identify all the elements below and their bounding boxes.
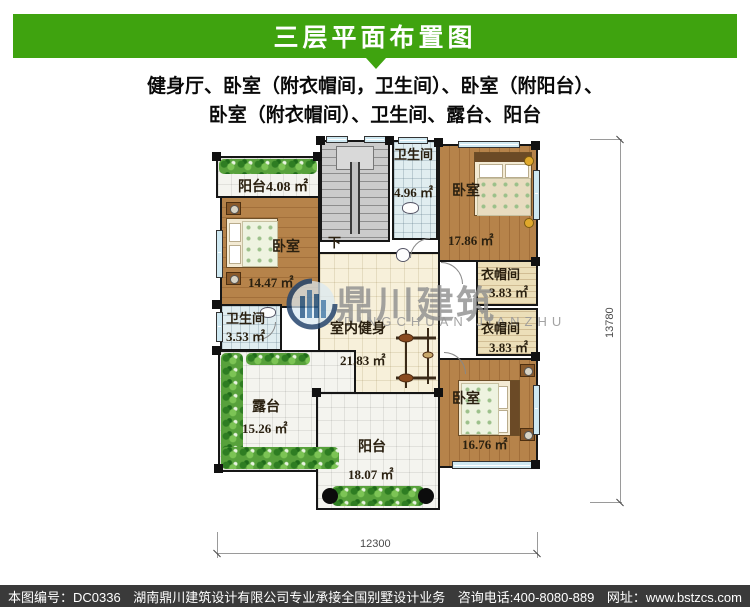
phone-number: 咨询电话:400-8080-889 <box>458 587 595 606</box>
title-bar: 三层平面布置图 <box>13 14 737 58</box>
plants-top-balcony <box>219 159 317 174</box>
page: { "header": { "title": "三层平面布置图", "descr… <box>0 0 750 607</box>
room-area-terrace: 15.26 ㎡ <box>242 418 288 437</box>
column <box>418 488 434 504</box>
room-label-bath-left: 卫生间 <box>226 308 265 327</box>
toilet <box>402 202 419 214</box>
room-area-bath-left: 3.53 ㎡ <box>226 326 265 345</box>
website-url: 网址：www.bstzcs.com <box>607 587 742 606</box>
description-line-2: 卧室（附衣帽间）、卫生间、露台、阳台 <box>0 101 750 130</box>
room-area-gym: 21.83 ㎡ <box>340 350 386 369</box>
dimension-bottom-value: 12300 <box>360 538 391 550</box>
room-area-closet-upper: 3.83 ㎡ <box>489 282 528 301</box>
window <box>216 312 223 342</box>
description-line-1: 健身厅、卧室（附衣帽间，卫生间）、卧室（附阳台）、 <box>0 72 750 101</box>
plants-bottom-balcony <box>332 486 424 506</box>
window <box>216 230 223 278</box>
room-label-bedroom-top-right: 卧室 <box>452 180 480 200</box>
window <box>398 137 428 144</box>
page-title: 三层平面布置图 <box>273 18 476 54</box>
wall-pillar <box>531 352 540 361</box>
bed-left <box>226 218 278 268</box>
sink <box>396 248 410 262</box>
wall-pillar <box>312 388 321 397</box>
room-label-closet-upper: 衣帽间 <box>481 264 520 283</box>
wall-pillar <box>212 346 221 355</box>
window <box>452 461 532 469</box>
window <box>364 136 386 143</box>
dimension-extension <box>590 502 622 503</box>
stair-rail <box>350 162 360 234</box>
drawing-number: 本图编号：DC0336 <box>8 587 121 606</box>
window <box>533 170 540 220</box>
wall-pillar <box>316 136 325 145</box>
room-label-closet-lower: 衣帽间 <box>481 318 520 337</box>
plants-terrace-top <box>246 353 310 365</box>
dimension-line-bottom <box>217 553 538 554</box>
wall-pillar <box>212 300 221 309</box>
room-label-terrace: 露台 <box>252 396 280 416</box>
lamp <box>524 156 534 166</box>
wall-pillar <box>531 460 540 469</box>
room-area-bath-top: 4.96 ㎡ <box>394 182 433 201</box>
room-label-bedroom-left: 卧室 <box>272 236 300 256</box>
room-area-bedroom-bottom-right: 16.76 ㎡ <box>462 434 508 453</box>
stairs-down-label: 下 <box>328 232 341 251</box>
room-label-balcony-bottom: 阳台 <box>358 436 386 456</box>
wall-pillar <box>214 464 223 473</box>
wall-pillar <box>434 388 443 397</box>
column <box>322 488 338 504</box>
room-area-closet-lower: 3.83 ㎡ <box>489 337 528 356</box>
room-area-balcony-bottom: 18.07 ㎡ <box>348 464 394 483</box>
room-area-bedroom-left: 14.47 ㎡ <box>248 272 294 291</box>
plan-description: 健身厅、卧室（附衣帽间，卫生间）、卧室（附阳台）、 卧室（附衣帽间）、卫生间、露… <box>0 72 750 130</box>
room-label-gym: 室内健身 <box>330 318 386 338</box>
wall-pillar <box>212 152 221 161</box>
nightstand <box>226 202 241 215</box>
room-label-bedroom-bottom-right: 卧室 <box>452 388 480 408</box>
footer-bar: 本图编号：DC0336 湖南鼎川建筑设计有限公司专业承接全国别墅设计业务 咨询电… <box>0 585 750 607</box>
staircase <box>320 140 390 242</box>
dimension-right-value: 13780 <box>604 307 616 338</box>
dimension-extension <box>590 139 622 140</box>
window <box>533 385 540 435</box>
company-name: 湖南鼎川建筑设计有限公司专业承接全国别墅设计业务 <box>133 587 445 606</box>
wall-pillar <box>434 138 443 147</box>
room-label-balcony-top: 阳台4.08 ㎡ <box>238 176 308 196</box>
room-area-bedroom-top-right: 17.86 ㎡ <box>448 230 494 249</box>
door-arc <box>410 238 430 258</box>
nightstand <box>520 364 535 377</box>
window <box>326 136 348 143</box>
dimension-line-right <box>620 139 621 503</box>
door-arc <box>444 352 466 374</box>
wall-pillar <box>313 152 322 161</box>
plants-terrace-bottom <box>221 447 339 469</box>
title-pointer-icon <box>366 58 386 69</box>
room-label-bath-top: 卫生间 <box>394 144 433 163</box>
nightstand <box>226 272 241 285</box>
floor-plan: 阳台4.08 ㎡ 卧室 14.47 ㎡ 下 卫生间 4.96 ㎡ 卧室 17.8… <box>0 130 750 580</box>
wall-pillar <box>385 136 394 145</box>
window <box>458 141 520 148</box>
wall-pillar <box>531 141 540 150</box>
fitness-equipment-icon <box>394 328 438 390</box>
wall-pillar <box>531 257 540 266</box>
